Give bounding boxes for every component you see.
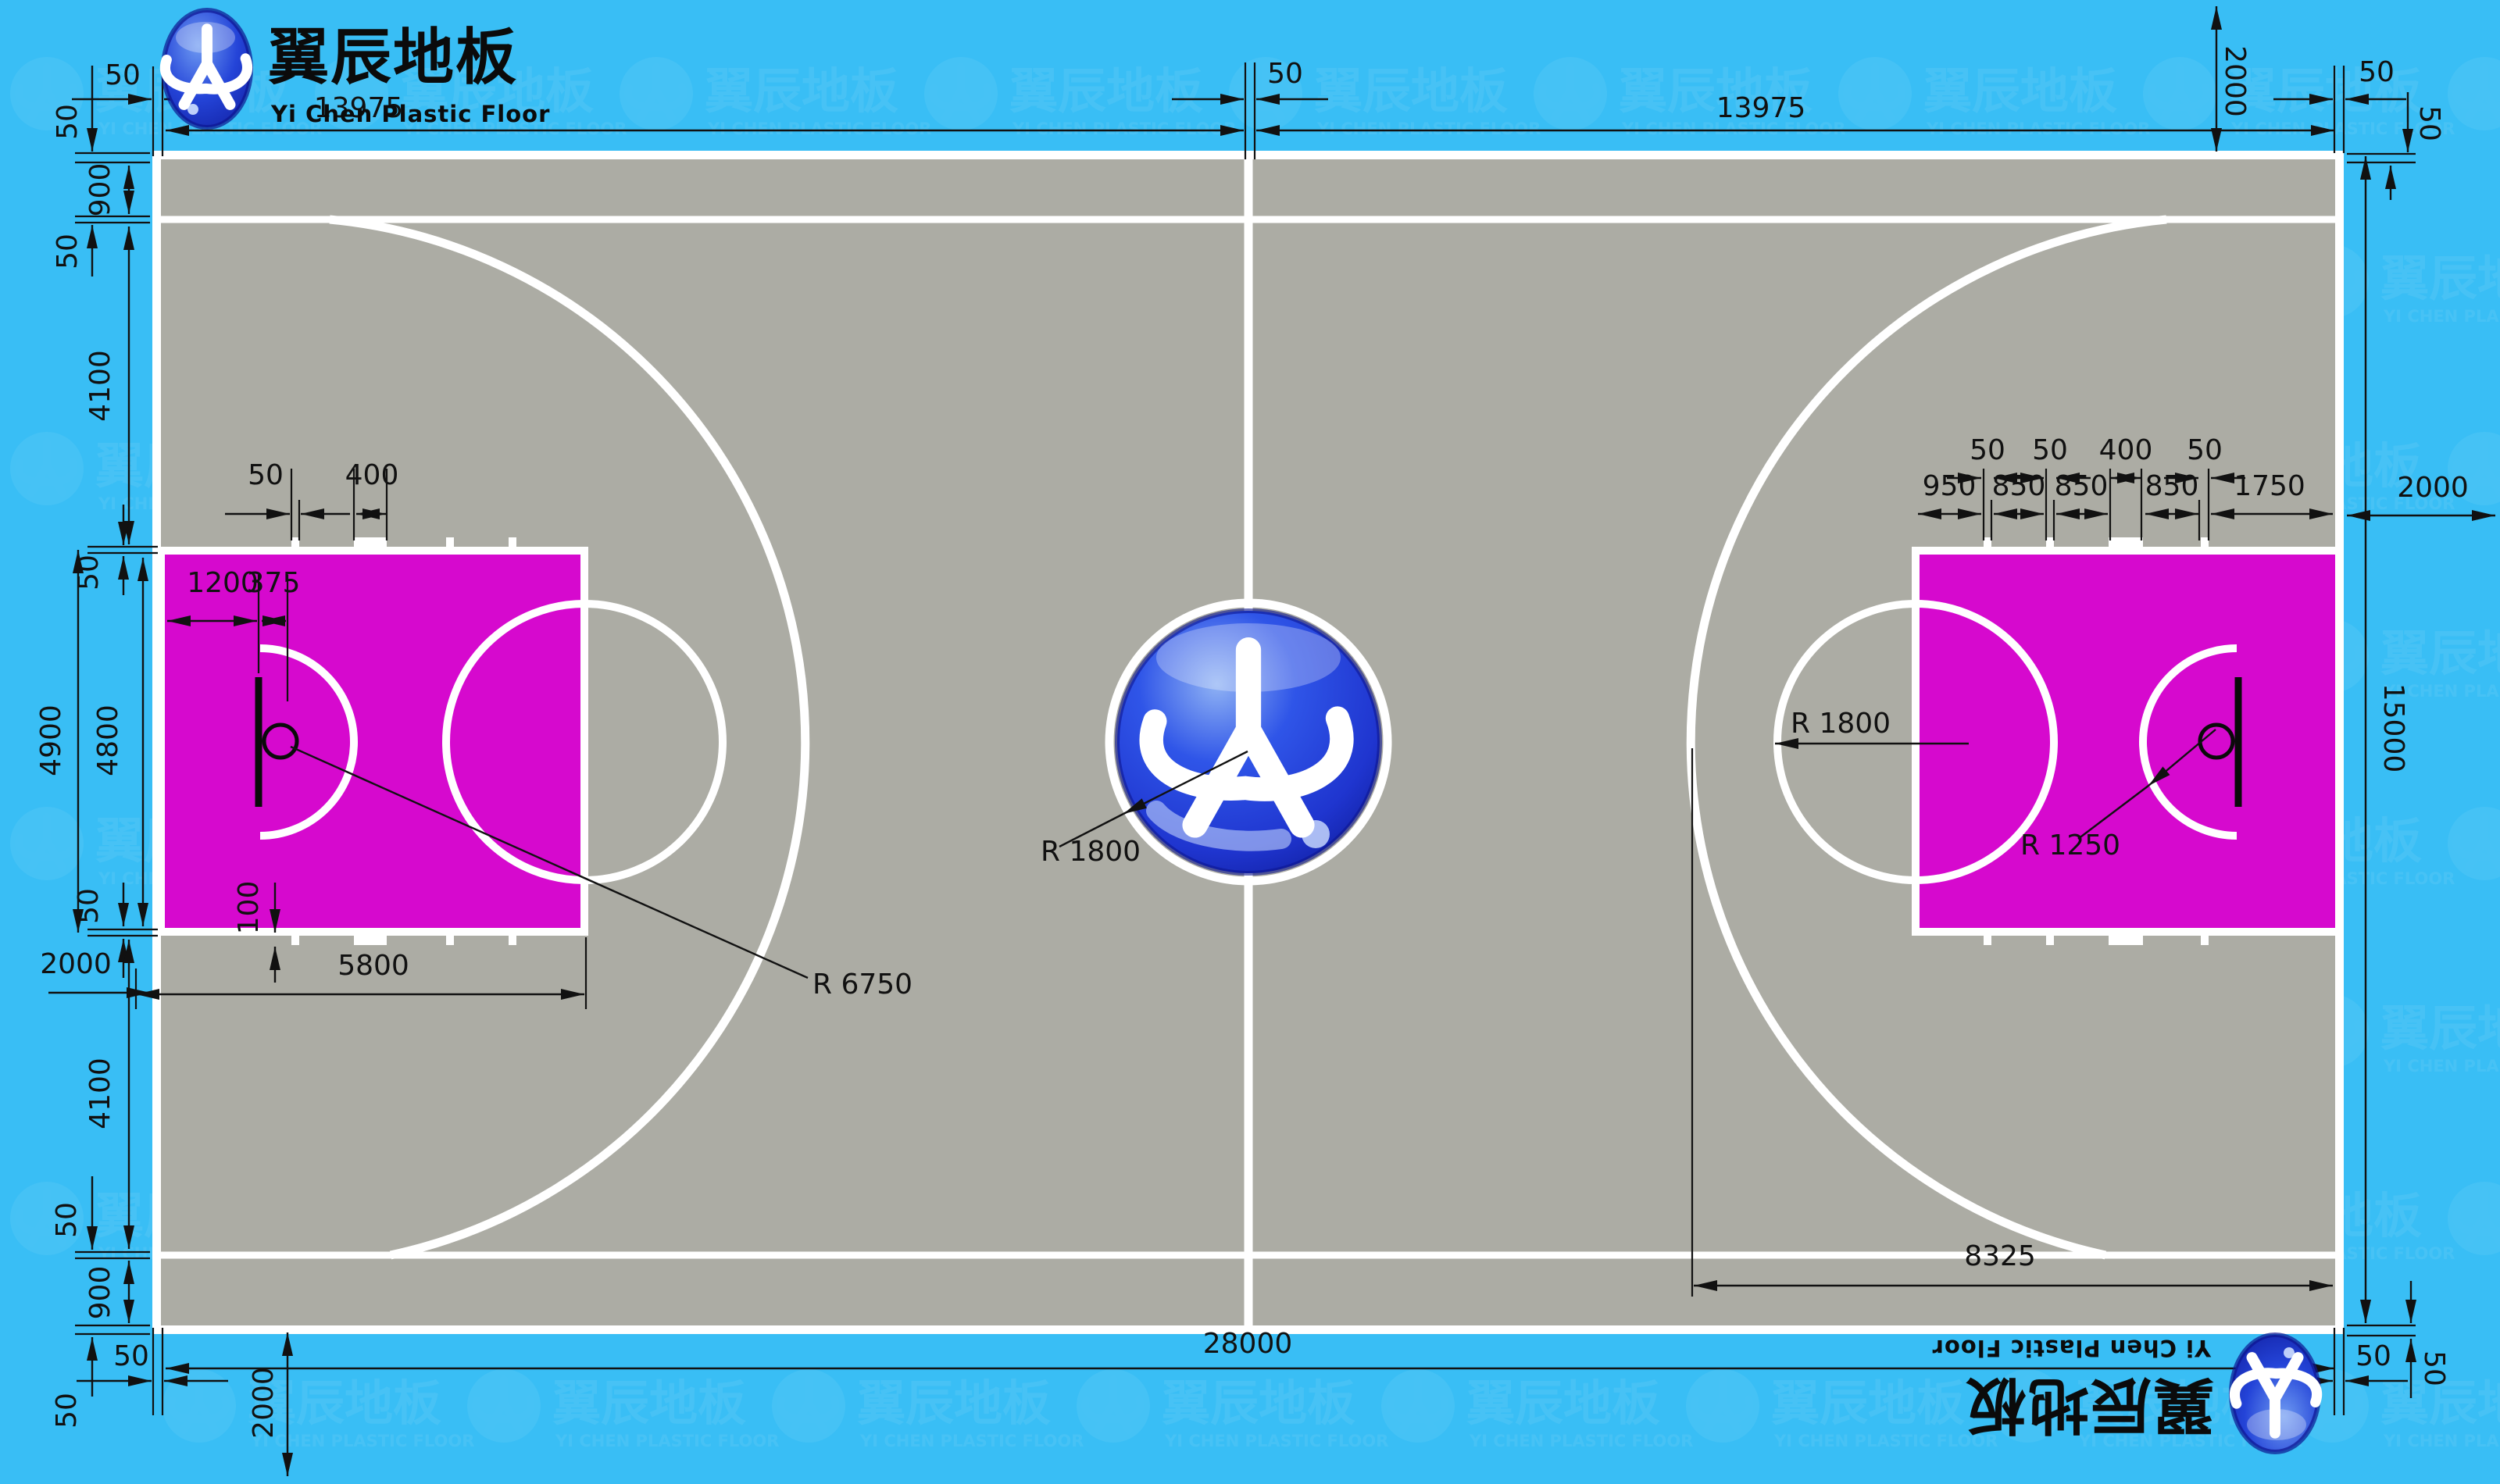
dimension-label: 900 — [84, 163, 116, 217]
watermark — [924, 57, 1236, 138]
dimension-label: 50 — [52, 234, 84, 269]
dimension-label: 4900 — [35, 705, 67, 776]
brand-name-cn: 翼辰地板 — [268, 23, 518, 93]
dimension-label: 50 — [2413, 105, 2445, 141]
dimension-label: 100 — [233, 881, 265, 935]
dimension-label: R 1800 — [1041, 836, 1141, 868]
dimension-label: 850 — [2055, 470, 2109, 502]
watermark — [1838, 57, 2150, 138]
dimension-label: 50 — [113, 1340, 149, 1372]
watermark — [1077, 1369, 1388, 1450]
dimension-label: 50 — [73, 888, 105, 924]
dimension-label: R 1800 — [1791, 708, 1891, 740]
dimension-label: 50 — [2032, 434, 2068, 466]
dimension: 50 — [73, 505, 123, 595]
watermark — [772, 1369, 1084, 1450]
dimension-label: 50 — [52, 104, 84, 140]
dimension-label: 50 — [1267, 58, 1303, 90]
key-area-left — [161, 551, 584, 932]
dimension-label: R 6750 — [812, 969, 912, 1001]
dimension-label: 900 — [84, 1266, 116, 1320]
watermark — [1686, 1369, 1998, 1450]
dimension-label: 8325 — [1964, 1240, 2036, 1272]
key-area-right — [1916, 551, 2339, 932]
dimension: 50 — [52, 225, 92, 276]
watermark — [2448, 57, 2500, 138]
dimension-label: 50 — [2418, 1350, 2450, 1386]
dimension-label: 850 — [2145, 470, 2199, 502]
center-logo-ball — [1117, 611, 1380, 873]
dimension-label: 50 — [51, 1202, 83, 1238]
watermark — [1381, 1369, 1693, 1450]
court-drawing: 翼辰地板 YI CHEN PLASTIC FLOOR — [0, 0, 2500, 1484]
watermark — [467, 1369, 779, 1450]
blueprint-page: 翼辰地板 YI CHEN PLASTIC FLOOR — [0, 0, 2500, 1484]
brand-name-en: Yi Chen Plastic Floor — [270, 101, 550, 127]
dimension: 15000 — [2366, 156, 2409, 1323]
dimension-label: 50 — [105, 59, 141, 91]
dimension-label: 50 — [2355, 1340, 2391, 1372]
dimension-label: 5800 — [337, 950, 409, 982]
dimension-label: 375 — [247, 567, 301, 599]
dimension: 900 — [84, 1261, 129, 1323]
dimension-label: 400 — [2099, 434, 2153, 466]
dimension-label: 50 — [73, 555, 105, 590]
dimension-label: 4800 — [92, 705, 124, 776]
dimension-label: 850 — [1992, 470, 2046, 502]
brand-name-cn: 翼辰地板 — [1964, 1369, 2214, 1439]
dimension-label: 50 — [51, 1393, 83, 1429]
dimension-label: 50 — [2359, 56, 2395, 88]
dimension: 50 — [51, 1337, 92, 1429]
dimension-label: 2000 — [40, 948, 112, 980]
dimension-label: 13975 — [1716, 92, 1806, 124]
dimension-label: R 1250 — [2020, 829, 2120, 862]
dimension-label: 2000 — [248, 1367, 280, 1439]
watermark — [620, 57, 931, 138]
company-logo-top-left: 翼辰地板 Yi Chen Plastic Floor — [163, 10, 550, 127]
dimension-label: 28000 — [1203, 1328, 1293, 1360]
dimension: 2000 — [40, 948, 150, 993]
dimension-label: 4100 — [84, 1058, 116, 1129]
dimension-label: 950 — [1923, 470, 1977, 502]
dimension-label: 50 — [1970, 434, 2005, 466]
dimension-label: 50 — [2187, 434, 2223, 466]
dimension-label: 50 — [248, 459, 284, 491]
company-logo-bottom-right: 翼辰地板 Yi Chen Plastic Floor — [1932, 1335, 2319, 1452]
watermark — [2448, 807, 2500, 888]
dimension-label: 2000 — [2219, 45, 2251, 117]
dimension-label: 2000 — [2397, 472, 2469, 504]
dimension-label: 1750 — [2234, 470, 2305, 502]
dimension-label: 4100 — [84, 350, 116, 422]
dimension: 900 — [84, 163, 129, 217]
watermark — [2448, 1182, 2500, 1263]
brand-name-en: Yi Chen Plastic Floor — [1932, 1335, 2212, 1361]
dimension-label: 15000 — [2377, 683, 2409, 773]
